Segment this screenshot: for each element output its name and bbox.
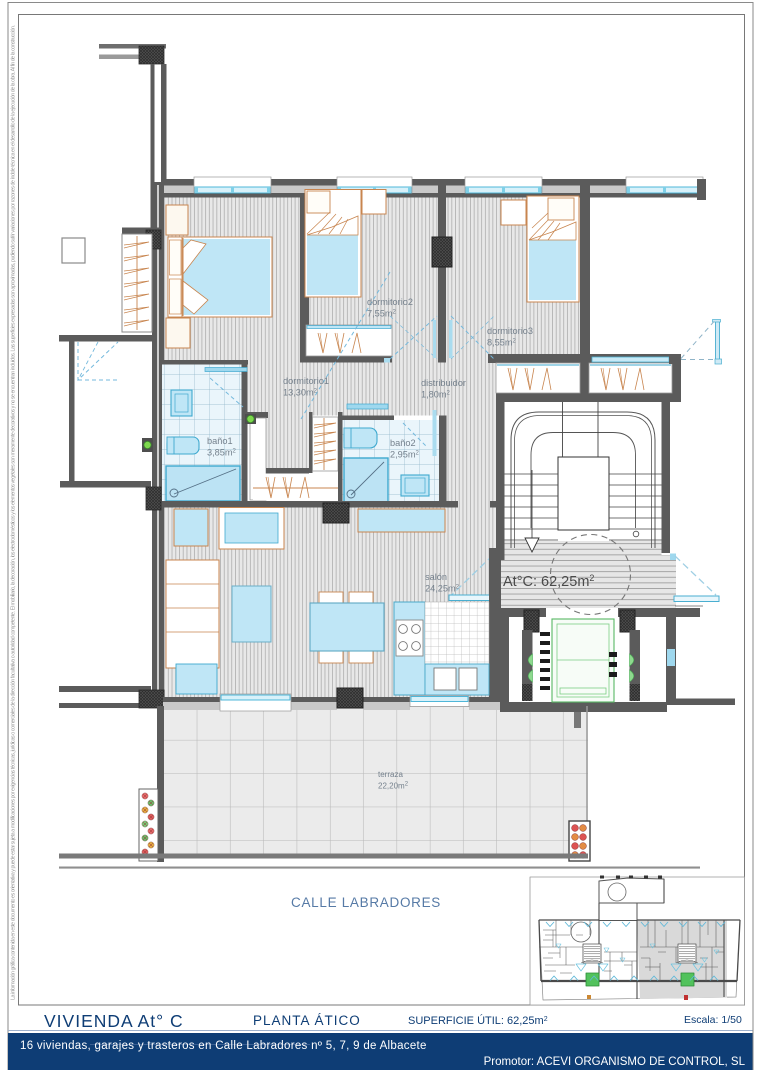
svg-text:baño1: baño1 bbox=[207, 436, 233, 446]
svg-text:CALLE LABRADORES: CALLE LABRADORES bbox=[291, 895, 441, 910]
svg-text:24,25m2: 24,25m2 bbox=[425, 584, 460, 594]
svg-text:salón: salón bbox=[425, 572, 447, 582]
svg-text:7,55m2: 7,55m2 bbox=[367, 309, 397, 319]
svg-text:dormitorio3: dormitorio3 bbox=[487, 326, 533, 336]
svg-text:baño2: baño2 bbox=[390, 438, 416, 448]
svg-text:La información gráfica conteni: La información gráfica contenida en este… bbox=[11, 25, 17, 1000]
svg-text:Escala: 1/50: Escala: 1/50 bbox=[684, 1014, 742, 1026]
svg-text:terraza: terraza bbox=[378, 770, 403, 779]
svg-text:2,95m2: 2,95m2 bbox=[390, 450, 420, 460]
svg-text:At°C: 62,25m2: At°C: 62,25m2 bbox=[503, 573, 594, 590]
svg-text:Promotor: ACEVI ORGANISMO DE C: Promotor: ACEVI ORGANISMO DE CONTROL, SL bbox=[484, 1056, 746, 1068]
svg-text:3,85m2: 3,85m2 bbox=[207, 448, 237, 458]
svg-text:1,80m2: 1,80m2 bbox=[421, 390, 451, 400]
svg-text:dormitorio2: dormitorio2 bbox=[367, 297, 413, 307]
svg-text:SUPERFICIE ÚTIL: 62,25m2: SUPERFICIE ÚTIL: 62,25m2 bbox=[408, 1014, 548, 1027]
svg-text:8,55m2: 8,55m2 bbox=[487, 338, 517, 348]
svg-text:VIVIENDA At° C: VIVIENDA At° C bbox=[44, 1011, 184, 1031]
svg-text:distribuidor: distribuidor bbox=[421, 378, 466, 388]
svg-text:PLANTA ÁTICO: PLANTA ÁTICO bbox=[253, 1013, 361, 1028]
svg-text:16 viviendas, garajes y traste: 16 viviendas, garajes y trasteros en Cal… bbox=[20, 1040, 427, 1052]
svg-text:dormitorio1: dormitorio1 bbox=[283, 376, 329, 386]
svg-text:13,30m2: 13,30m2 bbox=[283, 388, 318, 398]
svg-text:22,20m2: 22,20m2 bbox=[378, 782, 409, 791]
